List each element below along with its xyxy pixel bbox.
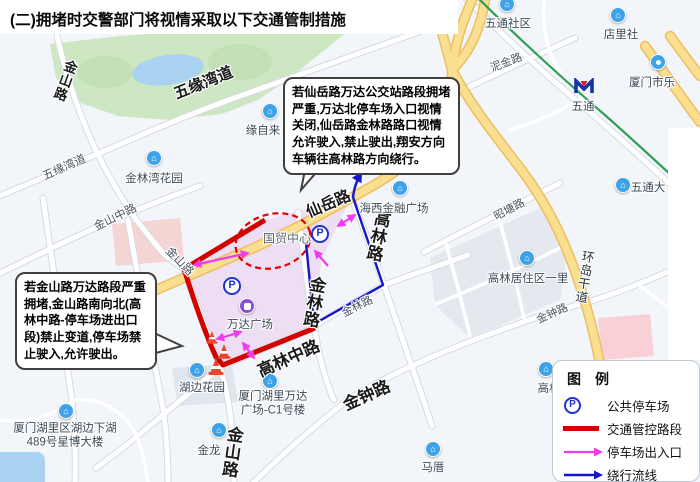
callout-jinshan: 若金山路万达路段严重拥堵,金山路南向北(高林中路-停车场进出口段)禁止变道,停车… (15, 272, 157, 370)
water-area (0, 452, 45, 482)
parking-marker-north[interactable]: P (311, 225, 329, 243)
building-icon[interactable] (58, 403, 74, 419)
building-icon[interactable] (392, 180, 408, 196)
poi-label-wutong-station: 五通 (572, 98, 595, 114)
poi-label-wutong-shequ: 五通社区 (485, 15, 531, 31)
building-icon[interactable] (146, 150, 162, 166)
legend-item-detour: 绕行流线 (563, 463, 691, 482)
poi-label-jinlong: 金龙 (198, 442, 221, 458)
legend-panel: 图 例 P 公共停车场 交通管控路段 停车场出入口 绕行流线 (552, 360, 700, 482)
callout-xianyue: 若仙岳路万达公交站路段拥堵严重,万达北停车场入口视情关闭,仙岳路金林路路口视情允… (283, 77, 460, 175)
legend-item-label: 停车场出入口 (607, 442, 682, 461)
poi-label-wanda-c1: 厦门湖里万达广场-C1号楼 (234, 390, 312, 419)
building-icon[interactable] (262, 103, 278, 119)
map-edge-margin (668, 128, 700, 360)
control-route-sample-icon (563, 426, 599, 431)
legend-item-control-route: 交通管控路段 (563, 417, 691, 440)
poi-label-wanda: 万达广场 (227, 316, 273, 332)
building-icon[interactable] (615, 177, 631, 193)
metro-station-icon[interactable] (574, 78, 594, 100)
legend-item-label: 绕行流线 (607, 465, 657, 482)
detour-arrow-sample-icon (563, 469, 607, 481)
building-icon[interactable] (425, 441, 441, 457)
location-pin-icon[interactable] (650, 54, 666, 70)
parking-sign-icon: P (564, 397, 581, 414)
poi-label-guomao: 国贸中心 (263, 230, 311, 247)
poi-label-hubian: 湖边花园 (179, 379, 225, 395)
poi-label-jinlinwan: 金林湾花园 (125, 170, 183, 186)
pink-block-east (598, 314, 654, 360)
poi-label-wutongda: 五通大 (631, 179, 666, 195)
legend-title: 图 例 (567, 369, 691, 389)
building-icon[interactable] (610, 7, 626, 23)
poi-label-macuo: 马厝 (422, 459, 445, 475)
legend-item-parking: P 公共停车场 (563, 394, 691, 417)
poi-label-xingbo: 厦门湖里区湖边下湖489号星博大楼 (11, 422, 119, 451)
poi-label-dianlishe: 店里社 (604, 26, 639, 42)
legend-item-label: 交通管控路段 (607, 419, 682, 438)
legend-item-parking-access: 停车场出入口 (563, 440, 691, 463)
traffic-control-map-page: 金山路 五缘湾道 五缘湾道 金山中路 金山路 仙岳路 金林路 金林路 高林路 高… (0, 0, 700, 482)
legend-item-label: 公共停车场 (607, 396, 670, 415)
building-icon[interactable] (189, 362, 205, 378)
poi-label-xiamenshile: 厦门市乐 (629, 74, 675, 90)
building-icon[interactable] (519, 250, 535, 266)
poi-label-gaolinjuzhuqu: 高林居住区一里 (488, 270, 569, 286)
page-title: (二)拥堵时交警部门将视情采取以下交通管制措施 (10, 8, 346, 30)
poi-label-haixi: 海西金融广场 (360, 200, 429, 216)
parking-arrow-sample-icon (563, 446, 607, 458)
wanda-plaza-icon[interactable] (239, 298, 255, 314)
parking-marker-west[interactable]: P (223, 277, 241, 295)
poi-label-yuanzilai: 缘自来 (246, 122, 281, 138)
